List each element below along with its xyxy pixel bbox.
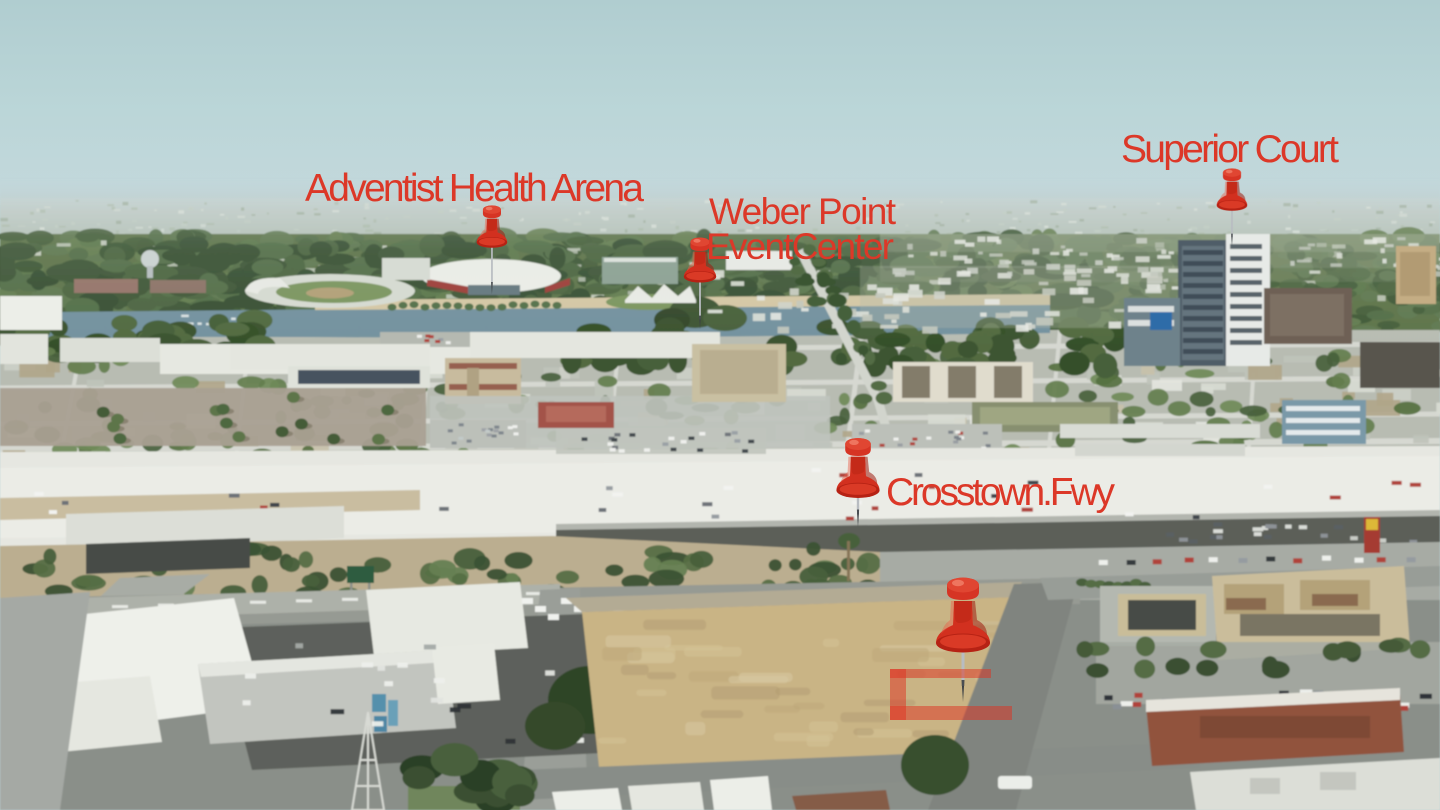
svg-text:EventCenter: EventCenter bbox=[706, 226, 894, 267]
svg-text:Crosstown.Fwy: Crosstown.Fwy bbox=[886, 471, 1116, 514]
svg-text:Superior Court: Superior Court bbox=[1121, 128, 1339, 171]
svg-text:Adventist Health Arena: Adventist Health Arena bbox=[305, 167, 644, 210]
